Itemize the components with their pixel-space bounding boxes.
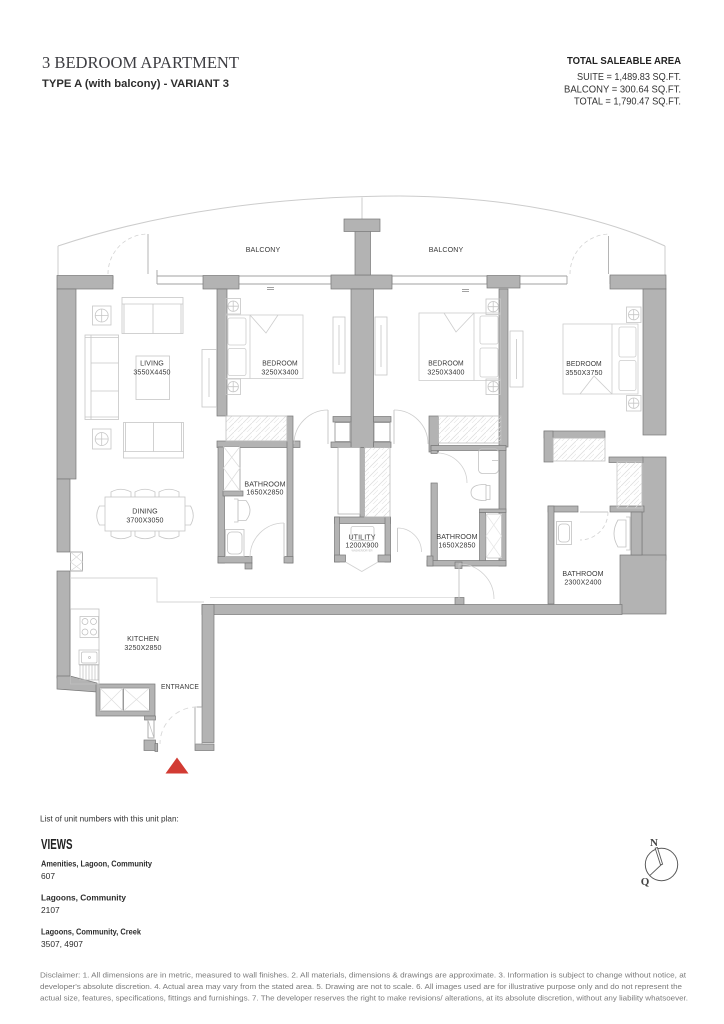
svg-text:N: N [650,837,658,849]
svg-text:1200X900: 1200X900 [345,542,378,550]
svg-text:TOTAL SALEABLE AREA: TOTAL SALEABLE AREA [567,56,682,67]
svg-text:3550X3750: 3550X3750 [565,369,602,377]
svg-text:BEDROOM: BEDROOM [428,360,464,368]
svg-text:3 BEDROOM APARTMENT: 3 BEDROOM APARTMENT [42,53,239,72]
svg-text:LIVING: LIVING [140,360,164,368]
svg-text:3700X3050: 3700X3050 [126,517,163,525]
svg-text:Q: Q [641,876,650,888]
svg-text:BEDROOM: BEDROOM [566,360,602,368]
svg-text:Disclaimer: 1. All dimensions: Disclaimer: 1. All dimensions are in met… [40,973,686,980]
svg-text:developer's absolute discretio: developer's absolute discretion. 4. Actu… [40,984,682,991]
svg-text:Lagoons, Community, Creek: Lagoons, Community, Creek [41,927,141,937]
svg-text:BALCONY: BALCONY [429,246,464,254]
svg-text:607: 607 [41,871,55,881]
svg-text:BATHROOM: BATHROOM [436,533,477,541]
svg-text:UTILITY: UTILITY [348,534,375,542]
svg-text:SUITE = 1,489.83 SQ.FT.: SUITE = 1,489.83 SQ.FT. [577,72,681,83]
svg-text:3250X3400: 3250X3400 [261,369,298,377]
svg-text:BATHROOM: BATHROOM [562,570,603,578]
svg-text:ENTRANCE: ENTRANCE [161,683,199,691]
svg-text:List of unit numbers with this: List of unit numbers with this unit plan… [40,815,179,824]
svg-text:3550X4450: 3550X4450 [133,369,170,377]
svg-text:actual size, features, specifi: actual size, features, specifications, f… [40,996,688,1003]
svg-text:BALCONY = 300.64 SQ.FT.: BALCONY = 300.64 SQ.FT. [564,85,681,96]
svg-text:Lagoons, Community: Lagoons, Community [41,893,126,903]
svg-text:Amenities, Lagoon, Community: Amenities, Lagoon, Community [41,859,152,869]
svg-text:BALCONY: BALCONY [246,246,281,254]
svg-text:1650X2850: 1650X2850 [438,542,475,550]
svg-text:KITCHEN: KITCHEN [127,635,159,643]
svg-text:3507, 4907: 3507, 4907 [41,939,83,949]
svg-text:DINING: DINING [132,508,157,516]
svg-text:2300X2400: 2300X2400 [564,579,601,587]
svg-text:VIEWS: VIEWS [41,837,73,853]
svg-text:WASHER/DRYER: WASHER/DRYER [351,549,372,553]
svg-text:BATHROOM: BATHROOM [244,481,285,489]
svg-text:TYPE A (with balcony) - VARIAN: TYPE A (with balcony) - VARIANT 3 [42,78,229,90]
svg-text:TOTAL = 1,790.47 SQ.FT.: TOTAL = 1,790.47 SQ.FT. [574,97,681,108]
svg-text:BEDROOM: BEDROOM [262,360,298,368]
svg-text:1650X2850: 1650X2850 [246,489,283,497]
svg-text:3250X2850: 3250X2850 [124,644,161,652]
svg-text:3250X3400: 3250X3400 [427,369,464,377]
svg-text:2107: 2107 [41,905,60,915]
